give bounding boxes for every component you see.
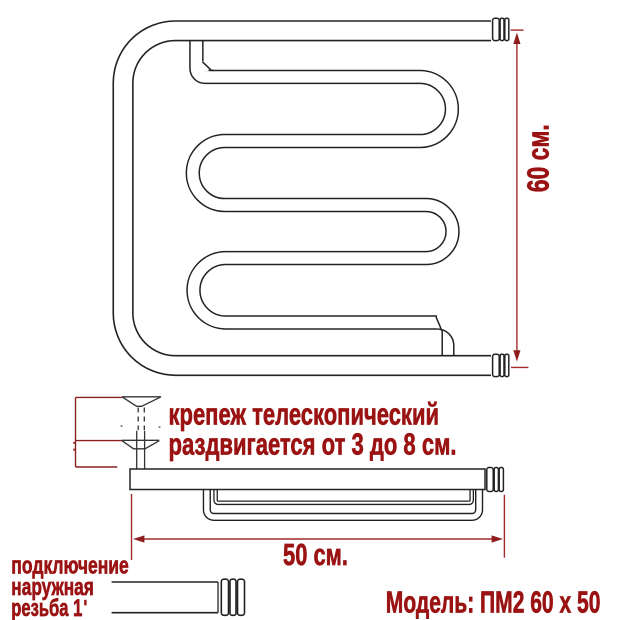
svg-text:50 см.: 50 см. [283,538,348,572]
svg-text:60 см.: 60 см. [522,124,556,192]
svg-text:раздвигается от 3 до 8 см.: раздвигается от 3 до 8 см. [169,427,457,462]
svg-text:резьба 1: резьба 1 [11,595,82,620]
svg-text:Модель: ПМ2 60 х 50: Модель: ПМ2 60 х 50 [386,586,601,620]
